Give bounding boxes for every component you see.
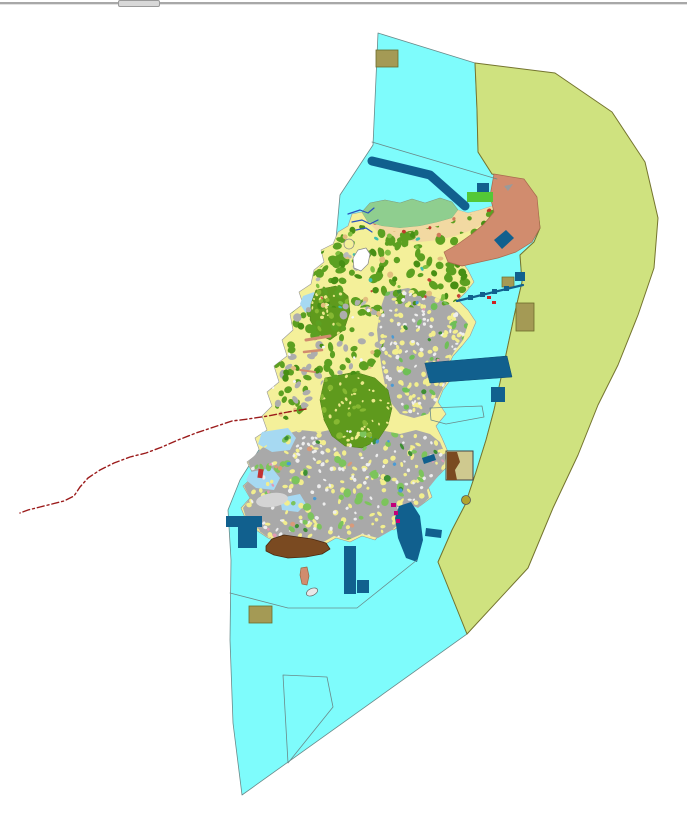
olive-islet <box>462 496 471 505</box>
magenta-mark-2 <box>394 511 398 515</box>
red-mark-east-2 <box>492 301 496 304</box>
green-parcel-ne <box>467 192 493 202</box>
navy-parcel-ne <box>477 183 489 192</box>
map-canvas[interactable] <box>0 0 687 821</box>
magenta-mark-3 <box>396 519 400 523</box>
khaki-parcel-north <box>376 50 398 67</box>
round-peninsula <box>344 239 354 249</box>
magenta-mark-1 <box>391 503 396 507</box>
khaki-parcel-east-large <box>516 303 534 331</box>
navy-jetty-south <box>344 546 356 594</box>
navy-wharf-west-v <box>238 527 257 548</box>
navy-square-south <box>357 580 369 593</box>
navy-wharf-west-h <box>226 516 262 527</box>
navy-parcel-east <box>515 272 525 281</box>
khaki-parcel-east-small <box>502 277 514 287</box>
map-page <box>0 0 687 821</box>
navy-basin-square <box>491 387 505 402</box>
red-mark-east-1 <box>487 296 491 299</box>
salmon-islet-south <box>300 567 309 585</box>
khaki-parcel-south <box>249 606 272 623</box>
